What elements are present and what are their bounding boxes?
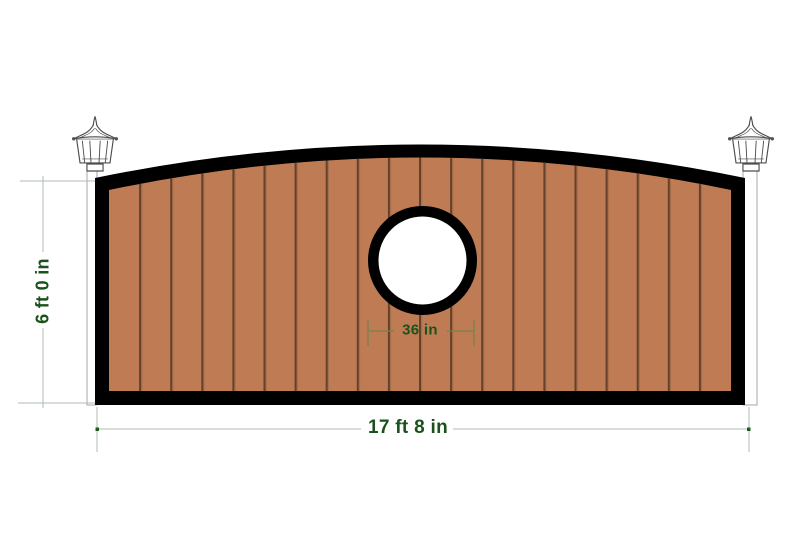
medallion-diameter-label: 36 in (402, 322, 438, 339)
width-dimension-label: 17 ft 8 in (368, 417, 448, 439)
width-dimension-dot-left (96, 428, 100, 432)
height-dimension-label: 6 ft 0 in (33, 258, 54, 324)
gate-design-canvas: 6 ft 0 in 17 ft 8 in 36 in (0, 0, 800, 538)
right-lamp-icon (729, 116, 774, 171)
height-dimension-line (18, 176, 95, 408)
right-post (743, 171, 757, 405)
left-lamp-icon (73, 116, 118, 171)
medallion-face (379, 217, 467, 305)
width-dimension-dot-right (747, 428, 751, 432)
gate-design-drawing (0, 0, 800, 538)
